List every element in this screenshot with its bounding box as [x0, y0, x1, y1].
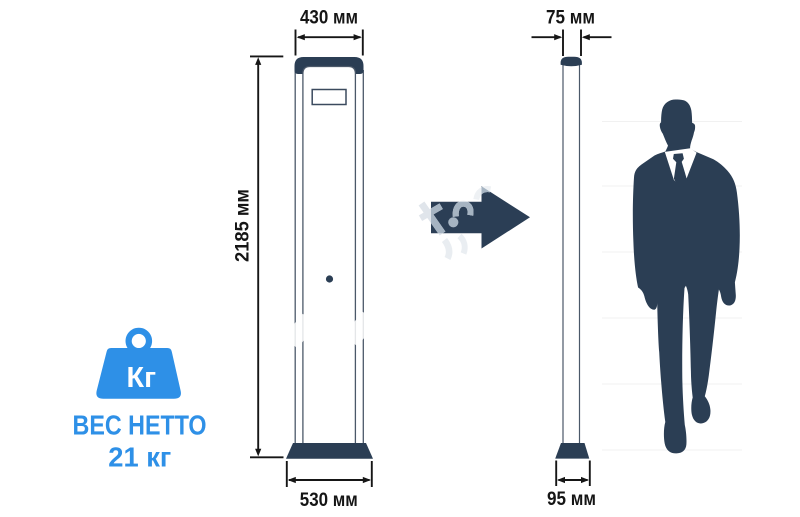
svg-text:Кг: Кг: [127, 362, 157, 394]
svg-text:ВЕС НЕТТО: ВЕС НЕТТО: [73, 410, 207, 441]
svg-text:95 мм: 95 мм: [547, 488, 596, 510]
svg-text:530 мм: 530 мм: [300, 489, 358, 511]
svg-text:2185 мм: 2185 мм: [231, 189, 253, 262]
svg-text:75 мм: 75 мм: [546, 7, 595, 29]
svg-text:430 мм: 430 мм: [300, 7, 358, 29]
svg-text:21 кг: 21 кг: [108, 442, 171, 473]
